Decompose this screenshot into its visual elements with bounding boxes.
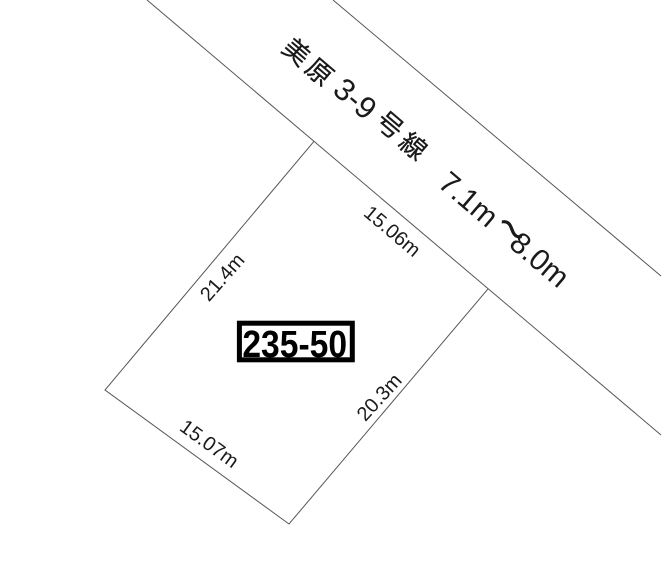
svg-text:235-50: 235-50 (242, 323, 347, 365)
